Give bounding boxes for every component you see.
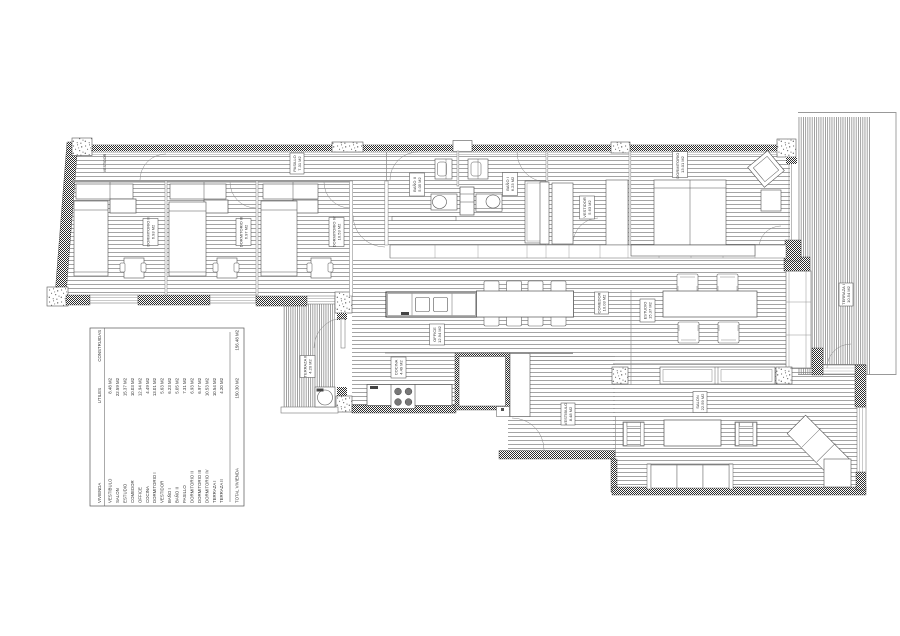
svg-text:TOTAL VIVIENDA: TOTAL VIVIENDA (235, 468, 240, 503)
svg-text:10.54 M2: 10.54 M2 (846, 285, 851, 302)
svg-text:4.49 M2: 4.49 M2 (398, 359, 403, 374)
svg-text:BAÑO I: BAÑO I (167, 488, 172, 503)
svg-text:12.94 M2: 12.94 M2 (137, 377, 142, 396)
svg-text:5.63 M2: 5.63 M2 (160, 377, 165, 393)
svg-text:6.23 M2: 6.23 M2 (167, 377, 172, 393)
svg-text:VESTIBULO: VESTIBULO (108, 478, 113, 503)
svg-text:ESTUDIO: ESTUDIO (122, 483, 127, 503)
svg-text:156.48 M2: 156.48 M2 (235, 329, 240, 350)
svg-text:SALON: SALON (115, 488, 120, 503)
svg-text:OFFICE: OFFICE (137, 487, 142, 503)
svg-text:10.53 M2: 10.53 M2 (204, 377, 209, 396)
svg-text:6.23 M2: 6.23 M2 (510, 176, 515, 191)
svg-text:DORMITORIO I: DORMITORIO I (152, 472, 157, 503)
svg-text:15.37 M2: 15.37 M2 (647, 301, 652, 318)
svg-text:15.37 M2: 15.37 M2 (122, 377, 127, 396)
svg-text:DORMITORIO II: DORMITORIO II (190, 471, 195, 503)
svg-text:10.53 M2: 10.53 M2 (336, 223, 341, 240)
svg-text:7.31 M2: 7.31 M2 (297, 155, 302, 170)
svg-text:7.31 M2: 7.31 M2 (182, 377, 187, 393)
svg-text:6.97 M2: 6.97 M2 (197, 377, 202, 393)
svg-text:5.63 M2: 5.63 M2 (587, 199, 592, 214)
svg-text:6.97 M2: 6.97 M2 (243, 224, 248, 239)
svg-text:COCINA: COCINA (145, 486, 150, 503)
svg-text:12.94 M2: 12.94 M2 (437, 325, 442, 342)
svg-text:CONSTRUIDAS: CONSTRUIDAS (97, 330, 102, 362)
svg-text:10.03 M2: 10.03 M2 (130, 377, 135, 396)
svg-text:COMEDOR: COMEDOR (130, 480, 135, 503)
svg-text:22.59 M2: 22.59 M2 (115, 377, 120, 396)
svg-text:4.49 M2: 4.49 M2 (145, 377, 150, 393)
svg-text:VIVIENDA: VIVIENDA (97, 483, 102, 503)
svg-text:8.48 M2: 8.48 M2 (108, 377, 113, 393)
svg-text:6.93 M2: 6.93 M2 (190, 377, 195, 393)
svg-text:TERRAZA II: TERRAZA II (219, 479, 224, 503)
svg-text:BAÑO II: BAÑO II (175, 487, 180, 503)
svg-text:6.93 M2: 6.93 M2 (150, 224, 155, 239)
svg-text:TERRAZA I: TERRAZA I (212, 481, 217, 503)
svg-text:4.20 M2: 4.20 M2 (307, 358, 312, 373)
svg-text:8.48 M2: 8.48 M2 (568, 406, 573, 421)
svg-text:PASILLO: PASILLO (182, 485, 187, 503)
svg-text:VESTIDOR: VESTIDOR (103, 153, 107, 172)
svg-text:DORMITORIO III: DORMITORIO III (197, 470, 202, 503)
svg-text:10.54 M2: 10.54 M2 (212, 377, 217, 396)
svg-text:4.20 M2: 4.20 M2 (219, 377, 224, 393)
svg-text:22.59 M2: 22.59 M2 (700, 393, 705, 410)
svg-text:UTILES: UTILES (97, 388, 102, 403)
svg-text:13.01 M2: 13.01 M2 (152, 377, 157, 396)
svg-text:13.01 M2: 13.01 M2 (680, 155, 685, 172)
svg-text:10.03 M2: 10.03 M2 (601, 294, 606, 311)
svg-text:DORMITORIO IV: DORMITORIO IV (204, 469, 209, 503)
svg-text:5.05 M2: 5.05 M2 (175, 377, 180, 393)
svg-text:5.05 M2: 5.05 M2 (417, 176, 422, 191)
svg-text:150.30 M2: 150.30 M2 (235, 377, 240, 398)
svg-text:VESTIDOR: VESTIDOR (160, 481, 165, 503)
